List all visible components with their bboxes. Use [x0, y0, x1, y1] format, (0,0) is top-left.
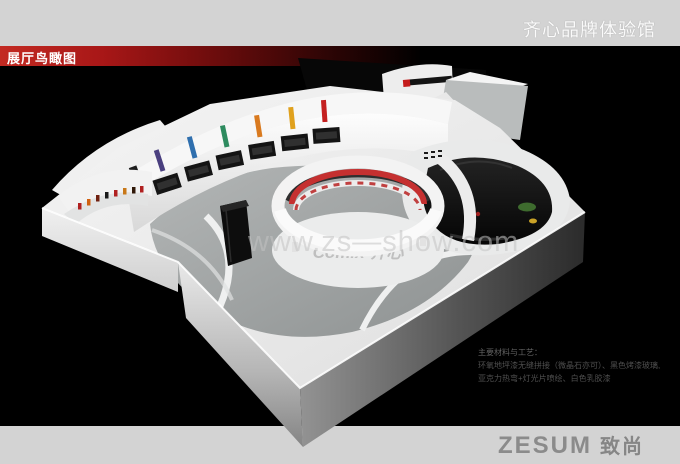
reception-signage	[403, 76, 452, 87]
display-panel-screen	[219, 155, 240, 166]
round-kiosk-pod	[323, 97, 359, 123]
showcase-product	[529, 219, 537, 224]
product-item	[78, 203, 82, 210]
display-panel	[281, 134, 309, 152]
display-strip	[254, 115, 262, 138]
ring-banner-white	[296, 183, 420, 210]
sign-red-square	[403, 79, 411, 87]
showcase-glass-highlight	[440, 161, 512, 170]
right-arm-bridge	[430, 92, 470, 128]
back-structures	[52, 58, 528, 198]
floor-path-line	[152, 230, 232, 300]
reception-desk	[384, 121, 424, 135]
monolith-top	[220, 200, 249, 212]
showcase-product	[518, 203, 536, 212]
display-bay	[210, 123, 244, 170]
display-bay	[244, 113, 276, 160]
display-wall-face	[128, 113, 448, 232]
floor-path-line	[206, 216, 229, 332]
right-arm-top	[446, 72, 528, 92]
corner-display	[129, 165, 145, 192]
alcove-shelf	[64, 192, 148, 224]
display-strip	[288, 107, 295, 129]
display-wall	[114, 92, 452, 232]
display-strip	[220, 125, 229, 148]
page-title: 齐心品牌体验馆	[523, 16, 656, 42]
product-item	[134, 176, 138, 180]
display-panel	[216, 150, 245, 170]
display-strip	[154, 149, 166, 171]
product-item	[114, 190, 118, 197]
materials-line: 亚克力热弯+灯光片喷绘、白色乳胶漆	[478, 372, 660, 385]
reception-wall	[382, 64, 454, 126]
display-panel	[152, 173, 181, 195]
display-bay	[278, 106, 309, 152]
kiosk-logo-mark	[334, 103, 348, 112]
product-item	[140, 186, 144, 193]
back-left-ridge-wall	[52, 120, 172, 198]
display-strip	[187, 136, 198, 159]
display-panel-screen	[188, 165, 209, 177]
display-panel	[184, 160, 213, 181]
showcase-product	[476, 212, 480, 216]
materials-note: 主要材料与工艺： 环氧地坪漆无缝拼接（微晶石亦可）、黑色烤漆玻璃, 亚克力热弯+…	[478, 346, 660, 385]
sign-black-bar	[408, 76, 452, 86]
ring-banner-text-blocks	[296, 183, 420, 210]
display-panel-screen	[252, 145, 273, 155]
slide-canvas: 齐心品牌体验馆 展厅鸟瞰图 ZESUM 致尚	[0, 0, 680, 464]
side-face-left-thin	[42, 208, 178, 292]
display-panel-screen	[284, 138, 306, 147]
display-panel	[312, 127, 340, 144]
ring-inner-wall	[286, 174, 430, 200]
vent-grill	[424, 150, 442, 159]
header-band: 齐心品牌体验馆	[0, 0, 680, 46]
product-item	[123, 188, 127, 195]
render-viewport: Comix 齐心 www.zs—show.com 主要材料与工艺： 环	[0, 46, 680, 464]
product-item	[96, 195, 100, 202]
monolith-gloss	[226, 210, 231, 262]
central-ring: Comix 齐心	[272, 162, 444, 288]
product-item	[87, 199, 91, 206]
side-face-front-left	[178, 262, 303, 447]
display-bay	[177, 133, 213, 181]
display-panel	[248, 141, 276, 160]
dark-backdrop	[298, 58, 486, 150]
right-arm-face	[438, 80, 528, 140]
display-strip	[321, 100, 328, 122]
display-bay	[144, 146, 182, 195]
display-panel-screen	[157, 177, 178, 190]
materials-line: 环氧地坪漆无缝拼接（微晶石亦可）、黑色烤漆玻璃,	[478, 359, 660, 372]
display-wall-top-edge	[114, 92, 452, 196]
display-panel-screen	[316, 131, 337, 139]
product-item	[132, 170, 136, 174]
left-product-alcove	[58, 170, 152, 224]
watermark: www.zs—show.com	[248, 226, 519, 259]
corner-display-case	[129, 165, 145, 192]
product-item	[132, 187, 136, 194]
alcove-back-wall	[58, 170, 152, 216]
floor-path-line	[362, 252, 470, 330]
materials-heading: 主要材料与工艺：	[478, 346, 660, 359]
product-item	[105, 192, 109, 199]
ring-banner-red	[292, 172, 424, 204]
display-bay	[310, 99, 340, 144]
